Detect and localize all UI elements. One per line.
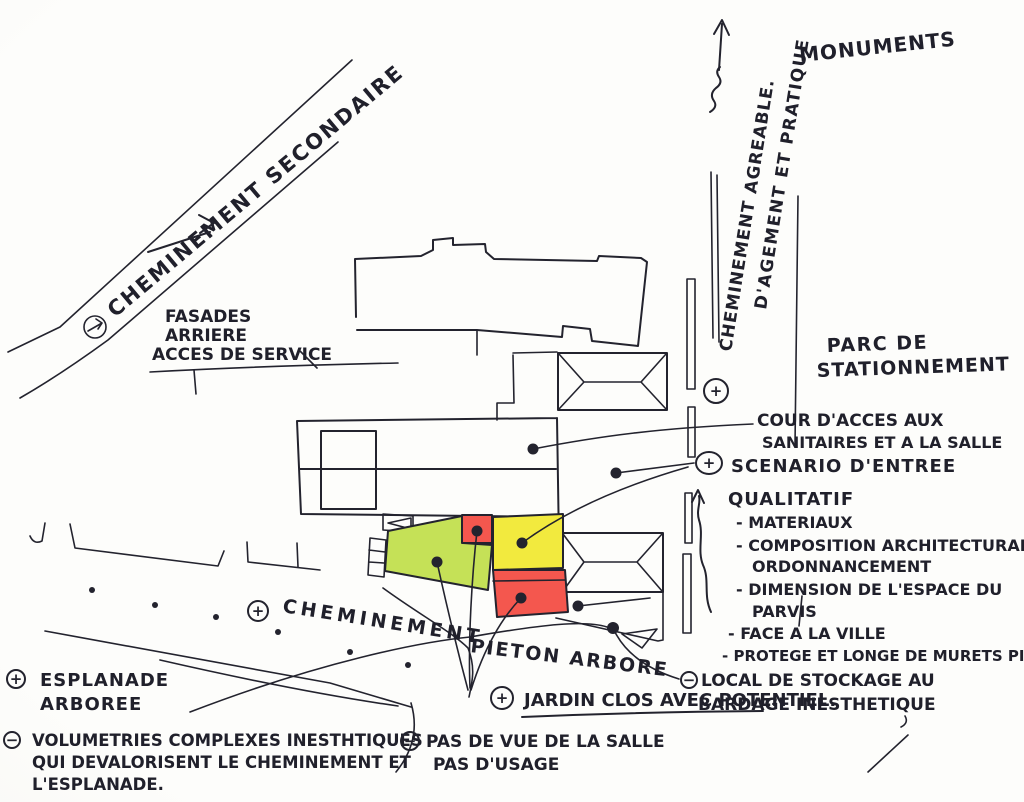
- buildings: [247, 238, 667, 648]
- secondary-road-label: CHEMINEMENT SECONDAIRE: [103, 60, 409, 322]
- wall-segment: [685, 493, 692, 543]
- storage-triangle: [622, 629, 657, 648]
- low-walls: [247, 542, 320, 570]
- building-b-extension: [556, 592, 663, 641]
- esplanade-line1: ESPLANADE: [40, 670, 169, 691]
- zone-red-large: [493, 570, 568, 617]
- tree-dot: [152, 602, 158, 608]
- volumetries-line3: L'ESPLANADE.: [32, 775, 164, 794]
- svg-text:−: −: [6, 731, 19, 749]
- plus-icon: +: [248, 601, 268, 621]
- parking-note: PARC DE STATIONNEMENT: [816, 331, 1010, 382]
- svg-text:−: −: [683, 671, 696, 689]
- esplanade-note: + ESPLANADE ARBOREE: [7, 670, 169, 715]
- plus-icon: +: [696, 452, 722, 474]
- facades-line2: ARRIERE: [165, 326, 247, 346]
- minus-icon: −: [4, 731, 20, 749]
- pas-de-vue-note: − PAS DE VUE DE LA SALLE PAS D'USAGE: [401, 732, 665, 775]
- wall-segment: [683, 554, 691, 633]
- site-sketch: CHEMINEMENT SECONDAIRE FASADES ARRIERE A…: [0, 0, 1024, 802]
- pieton-label: PIETON ARBORE: [469, 635, 669, 681]
- wall-segments: [683, 279, 695, 633]
- minus-icon: −: [681, 671, 697, 689]
- plus-icon: +: [7, 670, 25, 688]
- qualitatif-item: - DIMENSION DE L'ESPACE DU: [736, 580, 1002, 599]
- tree-dot: [213, 614, 219, 620]
- scenario-label: SCENARIO D'ENTREE: [731, 456, 956, 477]
- wall-segment: [687, 279, 695, 389]
- wall-segment: [688, 407, 695, 457]
- facades-line1: FASADES: [165, 307, 251, 327]
- parking-line2: STATIONNEMENT: [816, 353, 1010, 382]
- svg-text:+: +: [710, 382, 723, 400]
- volumetries-line2: QUI DEVALORISENT LE CHEMINEMENT ET: [32, 753, 412, 772]
- zone-red-divider: [493, 580, 565, 581]
- cour-line1: COUR D'ACCES AUX: [757, 411, 944, 431]
- sketch-page: CHEMINEMENT SECONDAIRE FASADES ARRIERE A…: [0, 0, 1024, 802]
- pas-de-vue-line1: PAS DE VUE DE LA SALLE: [426, 732, 665, 752]
- qualitatif-note: QUALITATIF - MATERIAUX - COMPOSITION ARC…: [692, 489, 1024, 665]
- qualitatif-item: - PROTEGE ET LONGE DE MURETS PIERRE: [722, 647, 1024, 665]
- pas-de-vue-leader: [868, 735, 908, 772]
- parking-line1: PARC DE: [826, 331, 928, 357]
- cour-note: COUR D'ACCES AUX SANITAIRES ET A LA SALL…: [757, 411, 1002, 452]
- north-path: CHEMINEMENT AGREABLE. D'AGEMENT ET PRATI…: [710, 20, 957, 446]
- plus-icon: +: [491, 687, 513, 709]
- tree-dot: [405, 662, 411, 668]
- qualitatif-item: PARVIS: [752, 602, 817, 621]
- scenario-note: + SCENARIO D'ENTREE: [696, 452, 956, 477]
- svg-text:+: +: [252, 602, 265, 620]
- local-note: − LOCAL DE STOCKAGE AU BARDAGE INESTHETI…: [681, 671, 936, 727]
- volumetries-line1: VOLUMETRIES COMPLEXES INESTHTIQUES: [32, 731, 423, 750]
- pas-de-vue-line2: PAS D'USAGE: [433, 755, 559, 775]
- svg-text:+: +: [10, 670, 23, 688]
- qualitatif-item: ORDONNANCEMENT: [752, 557, 931, 576]
- cour-line2: SANITAIRES ET A LA SALLE: [762, 433, 1002, 452]
- cheminement-pieton-note: + CHEMINEMENT PIETON ARBORE: [248, 595, 670, 681]
- volumetries-note: − VOLUMETRIES COMPLEXES INESTHTIQUES QUI…: [4, 731, 423, 794]
- svg-text:+: +: [496, 689, 509, 707]
- courtyard-steps: [477, 330, 557, 420]
- qualitatif-item: - MATERIAUX: [736, 513, 853, 532]
- hip-roof-building-a: [558, 353, 667, 410]
- path-direction-icon: [84, 316, 106, 338]
- esplanade-line2: ARBOREE: [40, 694, 142, 715]
- svg-text:+: +: [703, 454, 716, 472]
- qualitatif-title: QUALITATIF: [728, 489, 854, 510]
- squiggle-line: [710, 67, 720, 112]
- svg-text:−: −: [404, 732, 417, 750]
- arrow-up-icon: [714, 20, 729, 70]
- tree-dot: [275, 629, 281, 635]
- local-line1: LOCAL DE STOCKAGE AU: [701, 671, 935, 691]
- tree-dot: [347, 649, 353, 655]
- road-edge-line: [711, 172, 719, 342]
- local-line2: BARDAGE INESTHETIQUE: [698, 695, 936, 715]
- upper-building-outline: [355, 238, 647, 346]
- plus-icon: +: [704, 379, 728, 403]
- cheminement-label: CHEMINEMENT: [281, 595, 484, 648]
- facades-note: FASADES ARRIERE ACCES DE SERVICE: [150, 307, 398, 394]
- qualitatif-item: - COMPOSITION ARCHITECTURAL: [736, 536, 1024, 555]
- wavy-arrow-up-icon: [692, 490, 711, 612]
- monuments-label: MONUMENTS: [798, 27, 957, 67]
- qualitatif-item: - FACE A LA VILLE: [728, 624, 886, 643]
- local-comma: [901, 716, 906, 727]
- parking-edge-line: [795, 196, 798, 446]
- tree-dot: [89, 587, 95, 593]
